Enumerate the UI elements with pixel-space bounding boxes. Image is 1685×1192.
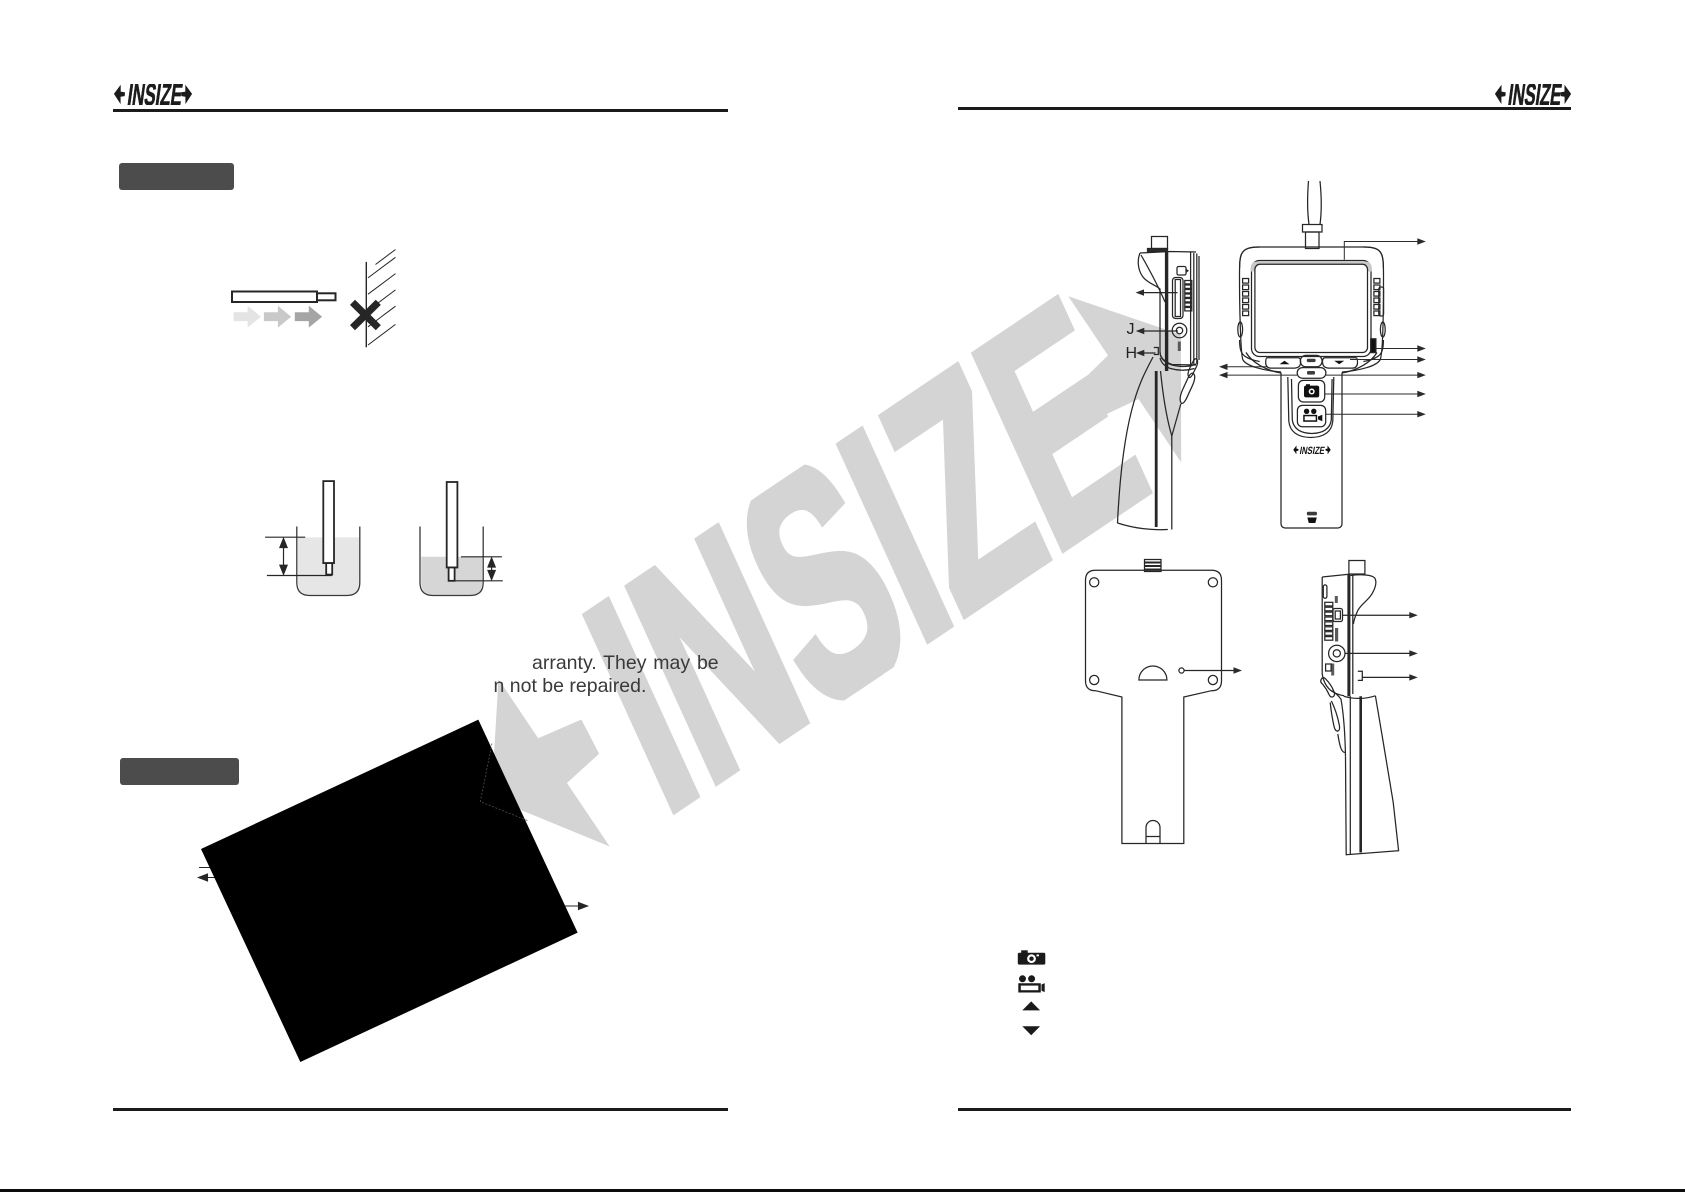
svg-text:INSIZE: INSIZE bbox=[1506, 84, 1563, 105]
svg-text:J: J bbox=[1127, 321, 1135, 338]
svg-text:INSIZE: INSIZE bbox=[1299, 445, 1326, 456]
svg-text:H: H bbox=[1126, 345, 1138, 362]
